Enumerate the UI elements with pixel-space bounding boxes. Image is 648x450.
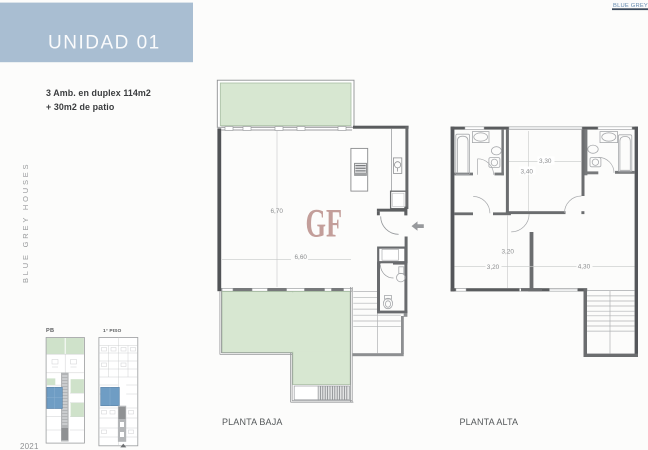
- svg-text:2021: 2021: [20, 442, 39, 450]
- svg-text:3 Amb. en duplex 114m2: 3 Amb. en duplex 114m2: [46, 88, 151, 98]
- svg-text:GF: GF: [306, 201, 343, 246]
- svg-text:PB: PB: [46, 328, 54, 334]
- svg-text:3,30: 3,30: [539, 158, 552, 165]
- svg-text:3,20: 3,20: [502, 249, 515, 256]
- svg-text:PLANTA BAJA: PLANTA BAJA: [222, 417, 283, 427]
- svg-text:3,20: 3,20: [487, 264, 500, 271]
- svg-text:6,60: 6,60: [295, 254, 308, 261]
- svg-text:6,70: 6,70: [271, 208, 284, 215]
- svg-text:UNIDAD 01: UNIDAD 01: [48, 32, 161, 53]
- svg-text:4,30: 4,30: [578, 263, 591, 270]
- svg-text:PLANTA ALTA: PLANTA ALTA: [460, 417, 519, 427]
- svg-text:1° PISO: 1° PISO: [103, 328, 122, 334]
- svg-text:BLUE GREY HOUSES: BLUE GREY HOUSES: [21, 162, 30, 283]
- svg-text:BLUE GREY HOUSES: BLUE GREY HOUSES: [613, 3, 648, 9]
- svg-text:3,40: 3,40: [521, 169, 534, 176]
- svg-text:+ 30m2 de patio: + 30m2 de patio: [46, 102, 115, 112]
